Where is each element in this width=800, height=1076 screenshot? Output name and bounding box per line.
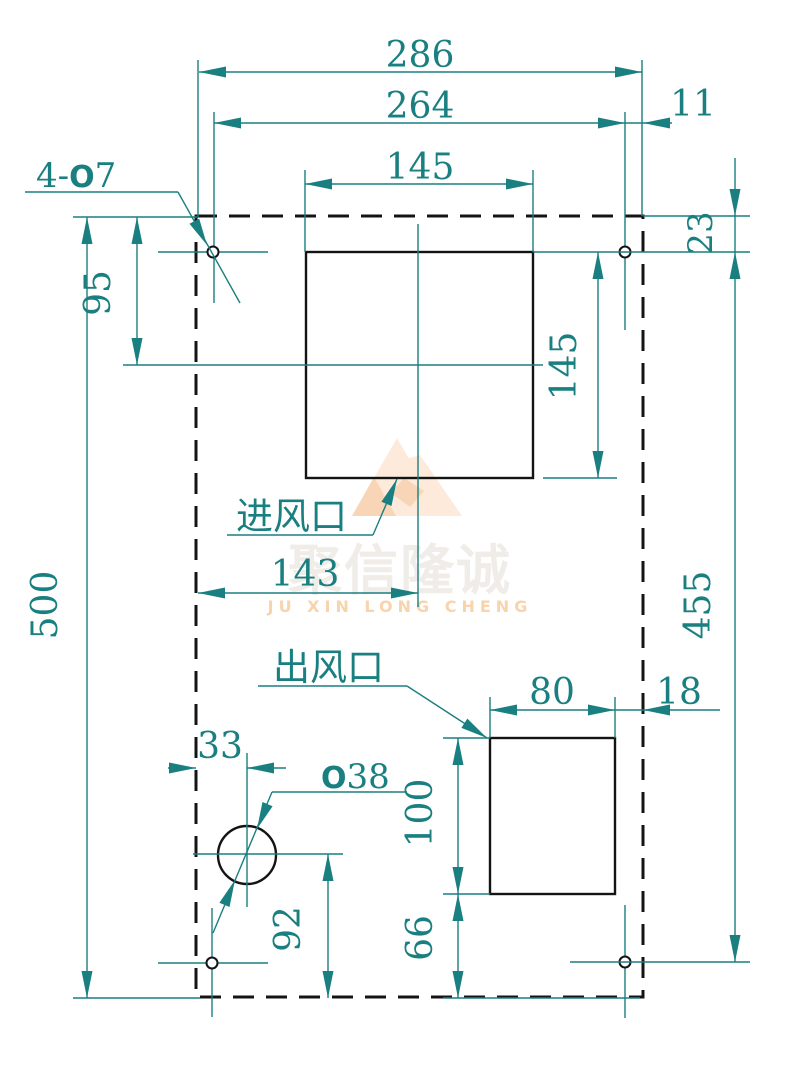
dim-text-95: 95 xyxy=(78,270,119,316)
dimension-outlet-from-bottom: 66 xyxy=(400,894,464,998)
dim-text-100: 100 xyxy=(400,779,441,848)
outlet-rect xyxy=(490,738,615,894)
outlet-opening xyxy=(490,738,615,894)
circle-diameter-callout: O38 xyxy=(213,757,407,933)
dim-text-23: 23 xyxy=(681,211,721,254)
dim-text-33: 33 xyxy=(197,726,243,767)
dimension-outlet-edge-right: 18 xyxy=(643,672,702,716)
drawing-canvas: 聚信隆诚 JU XIN LONG CHENG xyxy=(0,0,800,1076)
dim-text-92: 92 xyxy=(268,906,309,952)
dimension-circle-from-bottom: 92 xyxy=(268,854,334,998)
dimension-inlet-width: 145 xyxy=(305,147,533,252)
watermark-latin-text: JU XIN LONG CHENG xyxy=(267,597,533,616)
circle-diameter-text: O38 xyxy=(321,757,390,797)
dimension-hole-span-width: 264 xyxy=(214,86,672,129)
dim-text-11: 11 xyxy=(670,84,716,125)
dimension-overall-height: 500 xyxy=(25,217,93,998)
dim-text-145-width: 145 xyxy=(386,147,455,188)
dim-text-18: 18 xyxy=(656,672,702,713)
dim-text-66: 66 xyxy=(400,915,441,961)
dim-text-286: 286 xyxy=(386,35,455,76)
dim-text-264: 264 xyxy=(386,86,455,127)
dimension-circle-from-left: 33 xyxy=(168,726,286,774)
holes-callout-text: 4-O7 xyxy=(36,156,116,196)
dim-text-80: 80 xyxy=(529,672,575,713)
inlet-label-text: 进风口 xyxy=(236,495,347,538)
dimension-hole-edge-right: 11 xyxy=(643,84,716,129)
engineering-drawing-page: 聚信隆诚 JU XIN LONG CHENG xyxy=(0,0,800,1076)
dim-text-143: 143 xyxy=(271,554,340,595)
outlet-label-text: 出风口 xyxy=(273,646,384,689)
dimension-inlet-height: 145 xyxy=(543,252,617,478)
dim-text-455: 455 xyxy=(678,571,719,640)
dimension-hole-span-height: 455 xyxy=(570,571,750,962)
outlet-callout: 出风口 xyxy=(258,646,490,743)
dim-text-500: 500 xyxy=(25,571,66,640)
dim-text-145-height: 145 xyxy=(544,332,585,401)
mounting-hole-bottom-left xyxy=(207,958,218,969)
holes-callout: 4-O7 xyxy=(25,156,240,303)
